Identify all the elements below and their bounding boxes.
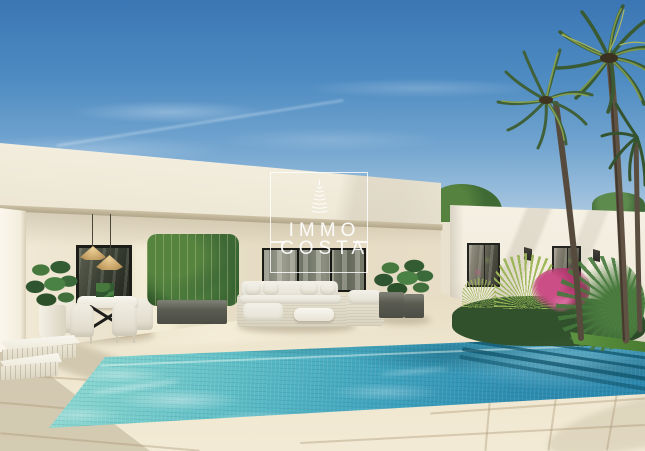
sofa-pillow	[263, 282, 279, 295]
tower-logo-icon	[307, 179, 332, 215]
villa-render-photo: IMMO COSTA	[0, 0, 645, 451]
concrete-planter	[157, 300, 227, 324]
monstera-plant	[24, 256, 80, 312]
left-return-wall	[0, 207, 26, 354]
table-plant	[96, 283, 114, 297]
palm-trees	[460, 0, 645, 355]
coconut-cluster	[539, 96, 553, 104]
coconut-cluster	[600, 53, 618, 63]
pendant-cord	[92, 214, 93, 247]
sofa-pillow	[245, 283, 261, 295]
dining-chair	[112, 303, 137, 336]
water-sparkle	[90, 379, 180, 395]
pendant-cord	[110, 214, 111, 256]
chair-leg	[116, 334, 118, 343]
tall-planter	[379, 292, 404, 318]
sofa-pillow	[300, 282, 318, 295]
coffee-table	[294, 308, 334, 321]
tall-planter	[404, 294, 424, 318]
chair-leg	[90, 335, 92, 344]
water-sparkle	[380, 367, 450, 376]
chaise-cushion	[243, 303, 283, 321]
bamboo-hedge	[147, 234, 239, 306]
watermark-line2: COSTA	[252, 238, 392, 260]
sofa-pillow	[320, 283, 336, 295]
chair-leg	[133, 334, 135, 343]
